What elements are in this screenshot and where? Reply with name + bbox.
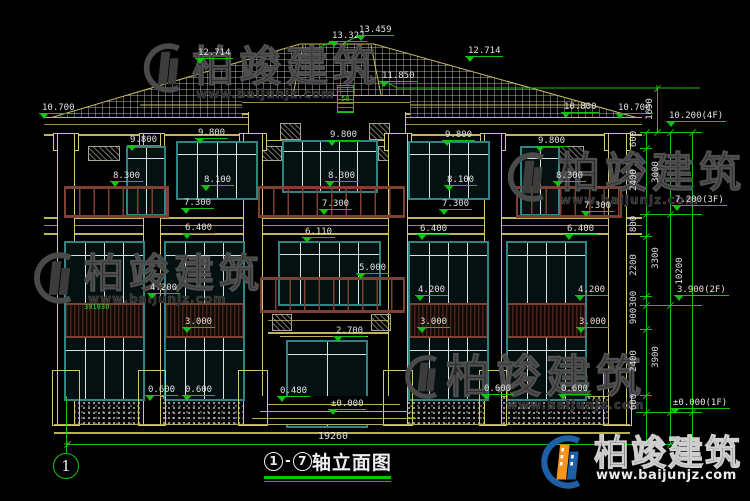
vertical-dim-label: 800 (629, 202, 639, 246)
frieze-block (280, 123, 301, 140)
elevation-value: ±0.000 (328, 399, 366, 409)
elevation-marker: 7.200(3F) (672, 195, 727, 212)
elevation-value: 7.300 (181, 198, 214, 208)
floor-slab-band (44, 217, 642, 235)
axis-number: 1 (61, 457, 71, 475)
elevation-marker: 0.480 (277, 386, 310, 403)
elevation-marker: 3.000 (576, 317, 609, 334)
elevation-marker: 3.000 (417, 317, 450, 334)
elevation-leader (379, 81, 417, 88)
elevation-value: 7.300 (439, 199, 472, 209)
window-detail-note: 301030 (84, 303, 109, 311)
elevation-marker: 12.714 (195, 48, 233, 65)
elevation-marker: 6.400 (564, 224, 597, 241)
elevation-leader (110, 181, 143, 188)
dim-line-vertical (657, 88, 658, 132)
elevation-leader (564, 234, 597, 241)
vertical-dim-label: 3000 (651, 150, 661, 194)
elevation-leader (417, 234, 450, 241)
elevation-leader (333, 336, 366, 343)
elevation-value: 13.459 (356, 25, 394, 35)
vertical-dim-label: 2400 (629, 339, 639, 383)
cad-elevation-canvas: 50 (0, 0, 750, 501)
entrance-base (246, 396, 406, 424)
elevation-value: 0.600 (145, 385, 178, 395)
overall-width-dim: 19260 (305, 431, 361, 442)
watermark-brand: 柏竣建筑 (594, 437, 742, 472)
elevation-value: 8.300 (553, 171, 586, 181)
elevation-marker: 7.300 (581, 201, 614, 218)
elevation-value: 9.800 (127, 135, 160, 145)
title-axis-end-bubble: 7 (293, 452, 312, 471)
vertical-dim-label: 10200 (675, 249, 685, 293)
elevation-marker: 5.000 (356, 263, 389, 280)
elevation-leader (145, 395, 178, 402)
elevation-leader (277, 396, 310, 403)
elevation-value: 6.400 (182, 223, 215, 233)
elevation-marker: 8.100 (444, 175, 477, 192)
elevation-leader (325, 181, 358, 188)
elevation-value: 10.800 (561, 102, 599, 112)
watermark-url: www.baijunjz.com (596, 469, 737, 482)
elevation-leader (575, 295, 608, 302)
title-axis-start-bubble: 1 (264, 452, 283, 471)
elevation-value: 9.800 (535, 136, 568, 146)
elevation-value: 4.200 (575, 285, 608, 295)
elevation-marker: 8.300 (325, 171, 358, 188)
elevation-marker: 10.200(4F) (666, 111, 726, 128)
watermark-logo (138, 40, 190, 96)
title-underline-thin (264, 481, 391, 482)
band-end-block (272, 314, 292, 331)
elevation-marker: 12.714 (465, 46, 503, 63)
window-upper (508, 243, 585, 303)
elevation-value: 8.100 (201, 175, 234, 185)
elevation-leader (666, 121, 726, 128)
elevation-marker: ±0.000 (328, 399, 366, 416)
elevation-marker: 3.000 (182, 317, 215, 334)
vertical-dim-label: 1650 (645, 87, 655, 131)
elevation-marker: 6.400 (182, 223, 215, 240)
elevation-leader (195, 138, 228, 145)
elevation-leader (674, 295, 729, 302)
elevation-value: 5.000 (356, 263, 389, 273)
elevation-leader (481, 394, 514, 401)
elevation-leader (182, 327, 215, 334)
axis-bubble-1: 1 (53, 453, 79, 479)
elevation-value: 8.300 (110, 171, 143, 181)
elevation-leader (328, 409, 366, 416)
watermark-url: www.baijunjz.com (196, 88, 335, 100)
elevation-leader (127, 145, 160, 152)
watermark-logo-color (534, 434, 592, 490)
elevation-marker: 4.200 (147, 283, 180, 300)
elevation-value: 0.600 (558, 384, 591, 394)
elevation-leader (535, 146, 568, 153)
elevation-value: 8.100 (444, 175, 477, 185)
elevation-leader (465, 56, 503, 63)
spandrel-slats (508, 303, 585, 338)
elevation-value: 4.200 (147, 283, 180, 293)
elevation-marker: 9.800 (195, 128, 228, 145)
elevation-leader (356, 35, 394, 42)
elevation-marker: 0.600 (481, 384, 514, 401)
elevation-marker: 9.800 (442, 130, 475, 147)
elevation-marker: 4.200 (415, 285, 448, 302)
elevation-leader (561, 112, 599, 119)
elevation-marker: 4.200 (575, 285, 608, 302)
elevation-value: 9.800 (327, 130, 360, 140)
elevation-leader (39, 113, 77, 120)
elevation-value: 11.850 (379, 71, 417, 81)
elevation-value: 7.300 (581, 201, 614, 211)
elevation-marker: 9.800 (327, 130, 360, 147)
drawing-title: 1 - 7 轴立面图 (264, 449, 392, 473)
elevation-marker: 8.300 (110, 171, 143, 188)
elevation-leader (356, 273, 389, 280)
elevation-value: 8.300 (325, 171, 358, 181)
vertical-dim-label: 600 (629, 117, 639, 161)
elevation-marker: 8.100 (201, 175, 234, 192)
elevation-marker: 0.600 (182, 385, 215, 402)
elevation-value: 10.700 (39, 103, 77, 113)
elevation-marker: ±0.000(1F) (670, 398, 730, 415)
title-text: 轴立面图 (312, 448, 392, 475)
elevation-leader (319, 209, 352, 216)
band-end-block (371, 314, 391, 331)
elevation-marker: 11.850 (379, 71, 417, 88)
elevation-value: 7.200(3F) (672, 195, 727, 205)
elevation-leader (182, 395, 215, 402)
elevation-marker: 10.700 (39, 103, 77, 120)
elevation-value: 9.800 (442, 130, 475, 140)
elevation-leader (201, 185, 234, 192)
elevation-marker: 7.300 (181, 198, 214, 215)
elevation-marker: 8.300 (553, 171, 586, 188)
elevation-leader (417, 327, 450, 334)
vertical-dim-label: 600 (629, 380, 639, 424)
elevation-leader (576, 327, 609, 334)
elevation-leader (670, 408, 730, 415)
corbel-block (88, 146, 120, 161)
elevation-value: 0.600 (481, 384, 514, 394)
elevation-leader (181, 208, 214, 215)
elevation-value: 3.000 (576, 317, 609, 327)
elevation-marker: 6.400 (417, 224, 450, 241)
elevation-leader (581, 211, 614, 218)
elevation-value: ±0.000(1F) (670, 398, 730, 408)
elevation-leader (327, 140, 360, 147)
elevation-value: 7.300 (319, 199, 352, 209)
elevation-marker: 0.600 (558, 384, 591, 401)
vertical-dim-label: 900 (629, 294, 639, 338)
elevation-leader (302, 237, 335, 244)
balcony-railing-2f (260, 277, 405, 313)
watermark-logo (400, 348, 446, 406)
elevation-marker: 7.300 (319, 199, 352, 216)
elevation-value: 6.110 (302, 227, 335, 237)
title-dash: - (283, 453, 293, 469)
elevation-leader (553, 181, 586, 188)
elevation-leader (439, 209, 472, 216)
elevation-marker: 7.300 (439, 199, 472, 216)
elevation-value: 12.714 (465, 46, 503, 56)
elevation-value: 3.000 (417, 317, 450, 327)
elevation-leader (195, 58, 233, 65)
elevation-marker: 13.459 (356, 25, 394, 42)
elevation-value: 0.480 (277, 386, 310, 396)
elevation-leader (672, 205, 727, 212)
elevation-marker: 9.800 (535, 136, 568, 153)
watermark-logo (502, 148, 554, 206)
elevation-marker: 2.700 (333, 326, 366, 343)
elevation-marker: 10.800 (561, 102, 599, 119)
elevation-marker: 6.110 (302, 227, 335, 244)
title-underline-thick (264, 476, 391, 479)
elevation-marker: 0.600 (145, 385, 178, 402)
elevation-leader (415, 295, 448, 302)
elevation-leader (442, 140, 475, 147)
elevation-value: 6.400 (417, 224, 450, 234)
vertical-dim-label: 2400 (629, 158, 639, 202)
elevation-value: 12.714 (195, 48, 233, 58)
watermark-logo (28, 250, 82, 306)
elevation-leader (444, 185, 477, 192)
vertical-dim-label: 3300 (651, 236, 661, 280)
elevation-leader (147, 293, 180, 300)
elevation-leader (182, 233, 215, 240)
elevation-value: 10.200(4F) (666, 111, 726, 121)
watermark-brand: 柏竣建筑 (446, 354, 646, 399)
elevation-marker: 9.800 (127, 135, 160, 152)
elevation-value: 0.600 (182, 385, 215, 395)
vertical-dim-label: 3900 (651, 335, 661, 379)
elevation-value: 4.200 (415, 285, 448, 295)
elevation-value: 3.000 (182, 317, 215, 327)
elevation-value: 2.700 (333, 326, 366, 336)
elevation-leader (558, 394, 591, 401)
roof-vent-label: 50 (341, 95, 349, 103)
elevation-value: 6.400 (564, 224, 597, 234)
elevation-value: 9.800 (195, 128, 228, 138)
